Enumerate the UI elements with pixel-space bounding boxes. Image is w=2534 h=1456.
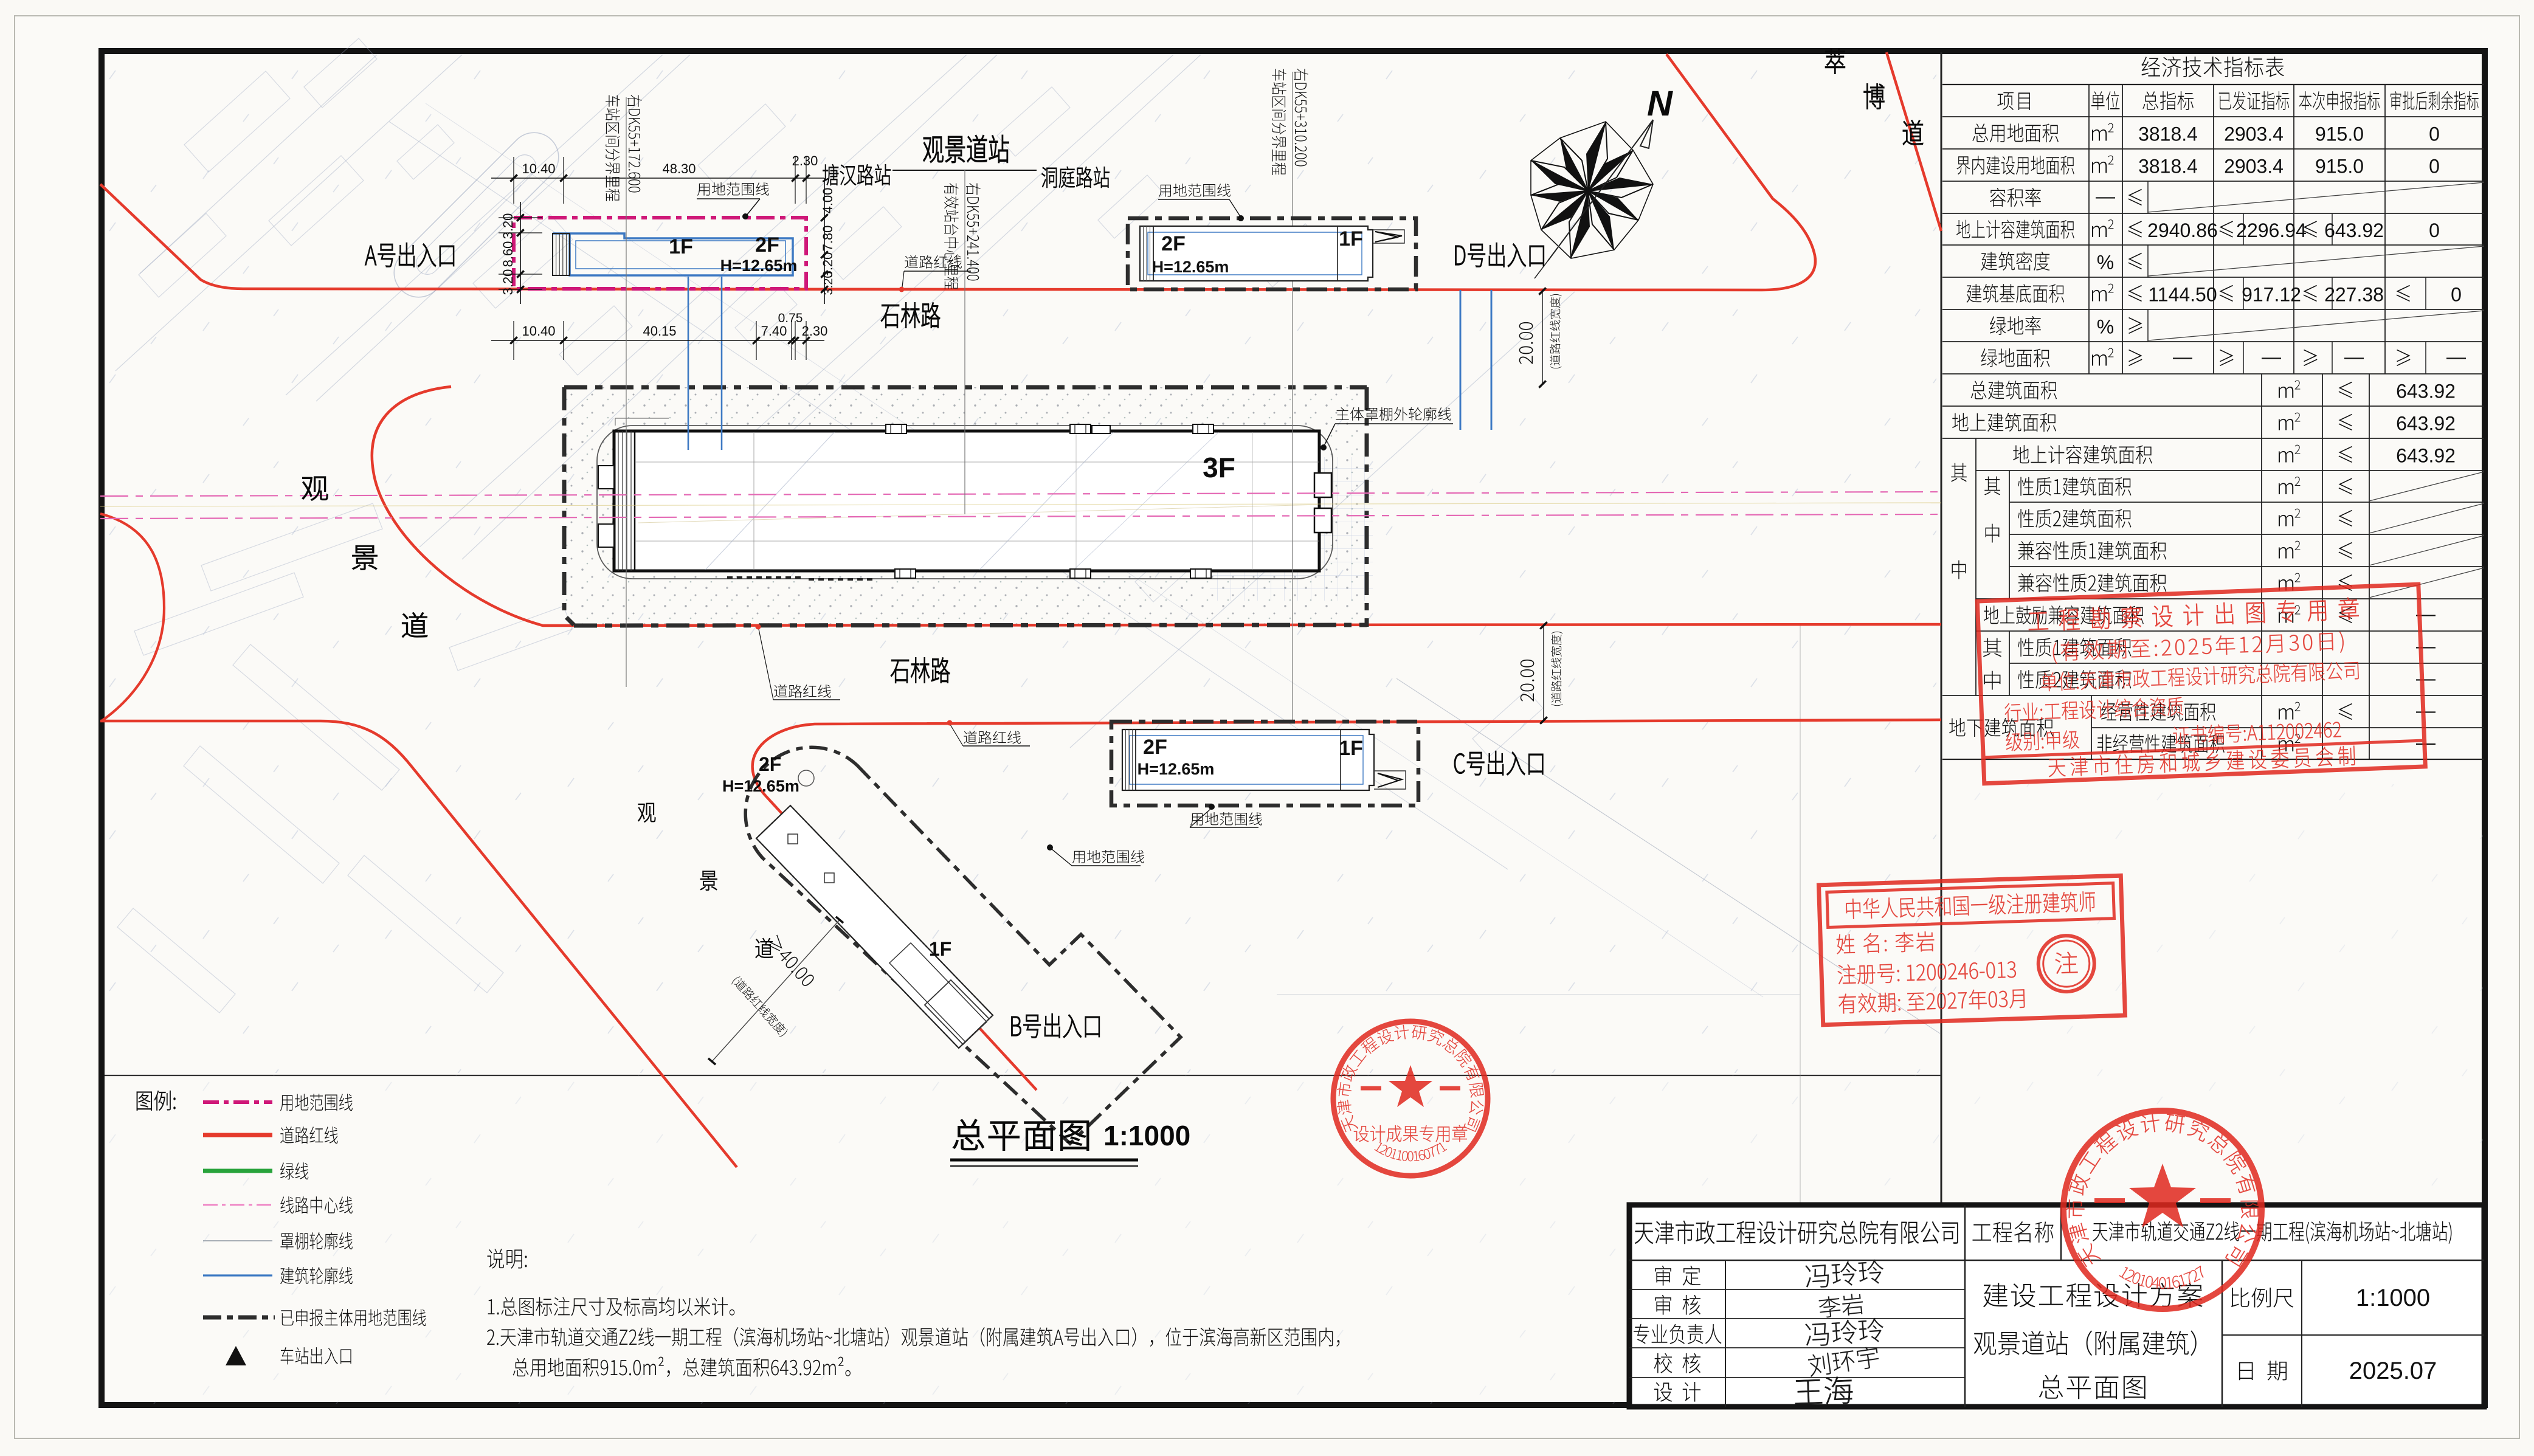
svg-text:915.0: 915.0 (2315, 123, 2364, 145)
svg-text:643.92: 643.92 (2396, 445, 2456, 467)
svg-text:H=12.65m: H=12.65m (1138, 760, 1215, 778)
svg-text:1:1000: 1:1000 (1103, 1120, 1190, 1151)
svg-text:0.75: 0.75 (778, 311, 803, 325)
svg-text:%: % (2097, 316, 2114, 338)
svg-text:2F: 2F (1161, 232, 1186, 255)
svg-text:3818.4: 3818.4 (2138, 123, 2198, 145)
svg-text:H=12.65m: H=12.65m (722, 777, 799, 795)
svg-text:2.30: 2.30 (792, 153, 818, 168)
svg-text:0: 0 (2429, 123, 2440, 145)
svg-text:48.30: 48.30 (662, 161, 696, 176)
svg-text:2296.94: 2296.94 (2236, 219, 2307, 241)
svg-text:2F: 2F (759, 753, 781, 775)
svg-text:H=12.65m: H=12.65m (1152, 258, 1229, 276)
svg-text:—: — (2416, 668, 2436, 689)
svg-text:915.0: 915.0 (2315, 156, 2364, 178)
svg-text:0: 0 (2451, 284, 2462, 306)
svg-text:2903.4: 2903.4 (2224, 123, 2284, 145)
svg-text:1144.50: 1144.50 (2148, 284, 2217, 306)
svg-text:H=12.65m: H=12.65m (720, 257, 798, 275)
svg-text:2903.4: 2903.4 (2224, 156, 2284, 178)
svg-text:7.80: 7.80 (820, 226, 835, 252)
svg-text:917.12: 917.12 (2242, 284, 2301, 306)
svg-text:3.20: 3.20 (500, 213, 516, 240)
svg-text:2F: 2F (1143, 736, 1167, 759)
svg-text:643.92: 643.92 (2324, 219, 2384, 241)
svg-text:1F: 1F (929, 938, 951, 960)
svg-text:2025.07: 2025.07 (2349, 1358, 2437, 1384)
svg-text:3.20: 3.20 (822, 272, 835, 295)
svg-text:10.40: 10.40 (522, 323, 555, 339)
svg-text:643.92: 643.92 (2396, 381, 2456, 402)
svg-text:10.40: 10.40 (522, 161, 555, 176)
svg-text:0: 0 (2429, 219, 2440, 241)
svg-text:N: N (1647, 84, 1673, 123)
svg-text:—: — (2416, 700, 2436, 722)
svg-text:2940.86: 2940.86 (2147, 219, 2218, 241)
svg-text:—: — (2344, 346, 2364, 368)
svg-text:2.30: 2.30 (802, 323, 828, 339)
svg-text:0: 0 (2429, 156, 2440, 178)
svg-text:—: — (2446, 346, 2466, 368)
svg-text:1:1000: 1:1000 (2356, 1285, 2430, 1311)
svg-text:1F: 1F (1339, 737, 1363, 760)
svg-text:4.00: 4.00 (820, 188, 835, 214)
svg-text:1F: 1F (669, 235, 693, 258)
svg-text:—: — (2262, 346, 2281, 368)
svg-text:2F: 2F (755, 233, 779, 257)
svg-text:8.60: 8.60 (500, 241, 516, 267)
svg-text:40.15: 40.15 (643, 323, 676, 339)
svg-text:1F: 1F (1339, 227, 1363, 250)
svg-text:%: % (2097, 252, 2114, 274)
svg-text:3818.4: 3818.4 (2138, 156, 2198, 178)
svg-text:—: — (2096, 185, 2115, 207)
svg-text:—: — (2173, 346, 2192, 368)
svg-text:7.40: 7.40 (761, 323, 787, 339)
svg-text:3.20: 3.20 (500, 269, 516, 295)
svg-text:643.92: 643.92 (2396, 413, 2456, 435)
svg-text:227.38: 227.38 (2324, 284, 2384, 306)
svg-text:3F: 3F (1203, 452, 1235, 483)
